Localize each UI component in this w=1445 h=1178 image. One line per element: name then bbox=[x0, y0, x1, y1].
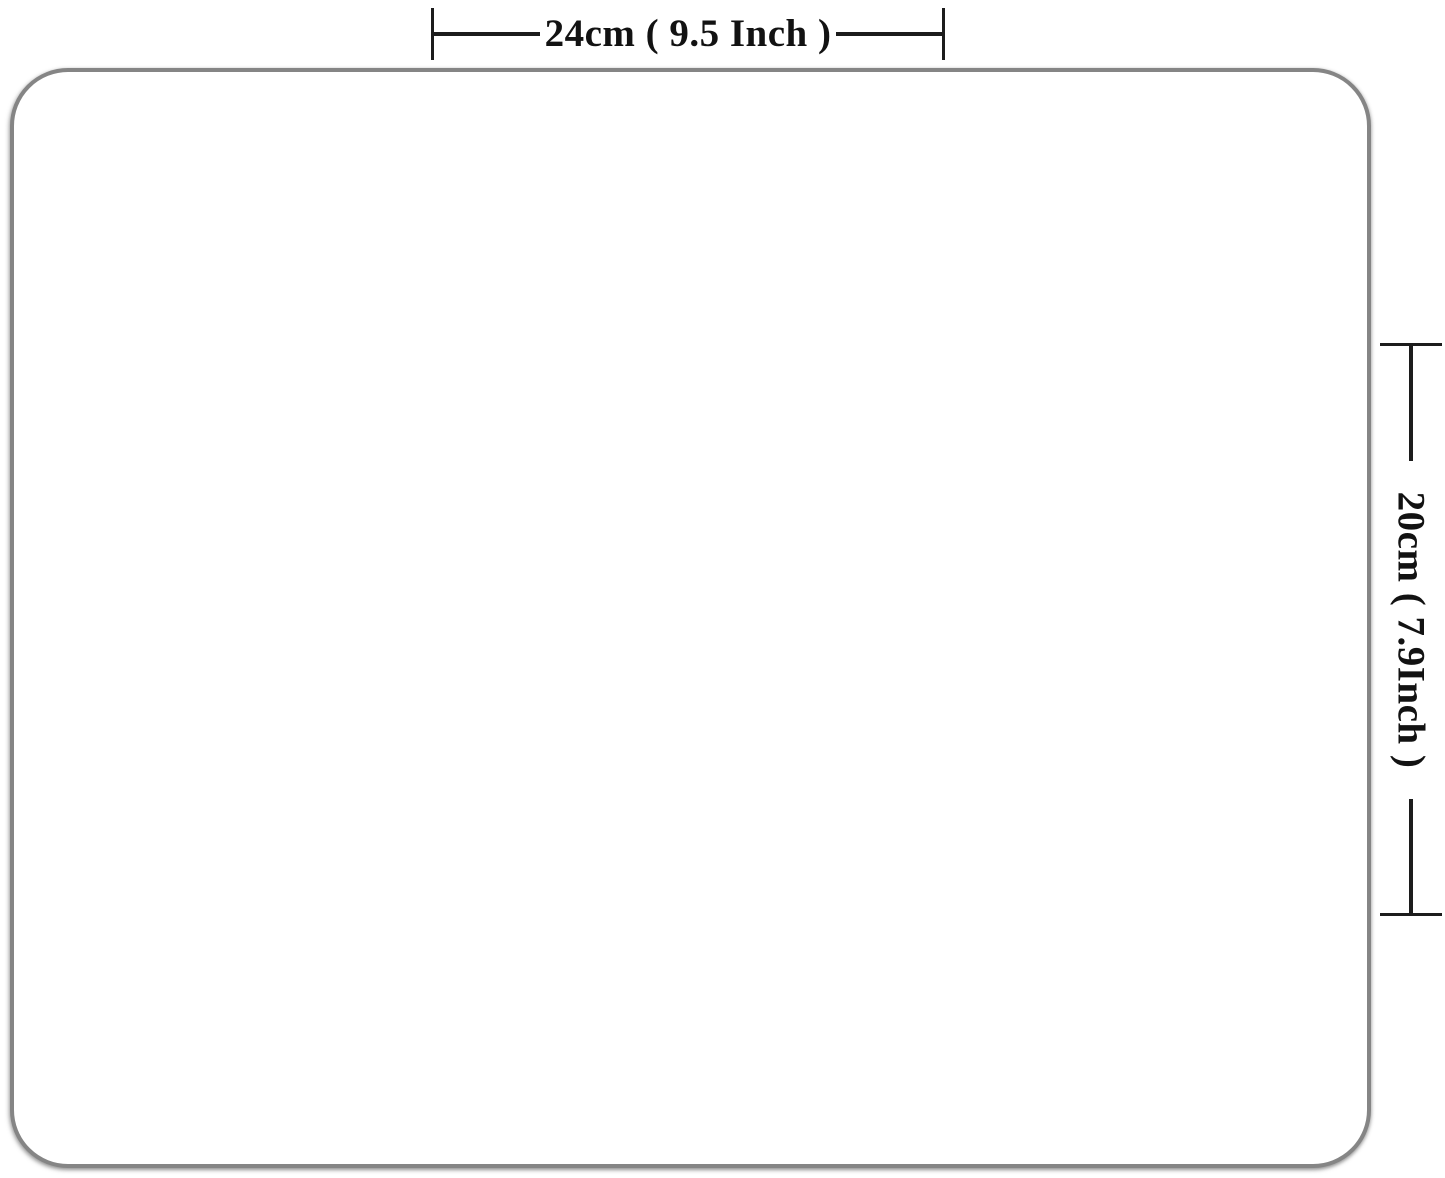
mousepad-surface bbox=[10, 68, 1371, 1168]
width-dimension-right-line bbox=[836, 32, 942, 36]
width-dimension-left-line bbox=[434, 32, 540, 36]
height-dimension-label: 20cm ( 7.9Inch ) bbox=[1392, 491, 1431, 768]
height-dimension-top-line bbox=[1409, 346, 1413, 461]
width-dimension: 24cm ( 9.5 Inch ) bbox=[431, 8, 945, 60]
height-dimension-bottom-tick bbox=[1380, 913, 1442, 916]
width-dimension-label: 24cm ( 9.5 Inch ) bbox=[540, 8, 837, 60]
height-dimension-bottom-line bbox=[1409, 799, 1413, 914]
height-dimension: 20cm ( 7.9Inch ) bbox=[1380, 343, 1442, 916]
width-dimension-right-tick bbox=[942, 8, 945, 60]
height-dimension-label-area: 20cm ( 7.9Inch ) bbox=[1380, 461, 1442, 799]
